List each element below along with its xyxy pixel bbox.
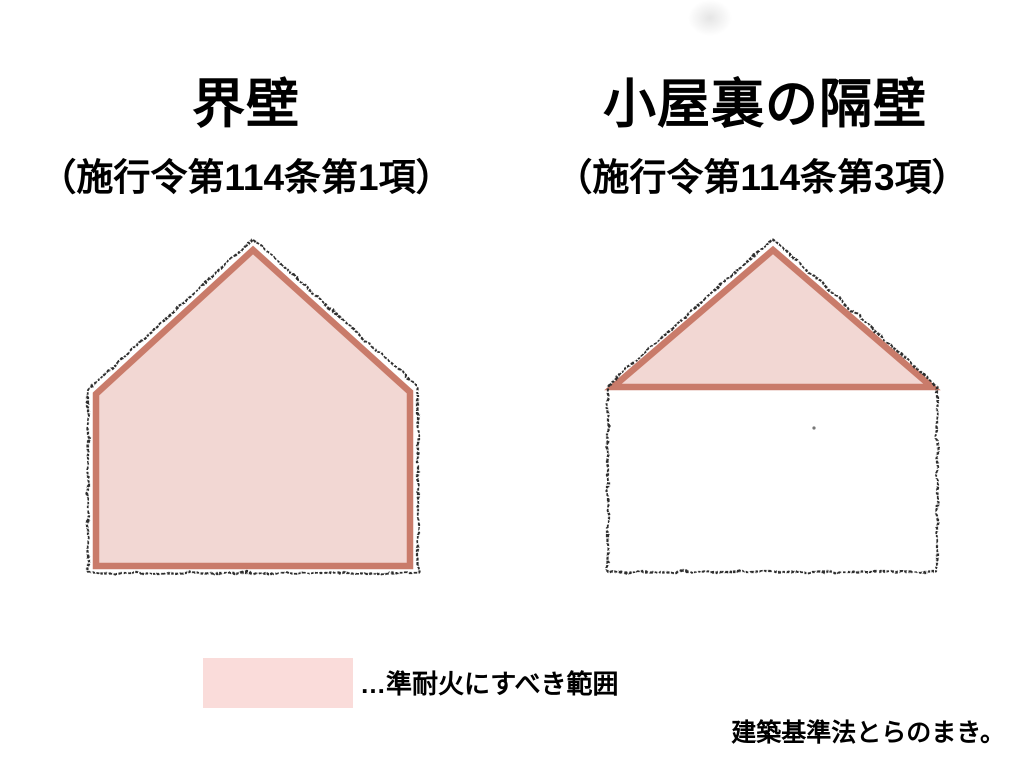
left-house-shaded-area (96, 250, 410, 566)
credit-text: 建築基準法とらのまき。 (731, 713, 1005, 749)
left-panel-subtitle: （施行令第114条第1項） (39, 156, 452, 200)
legend-swatch (203, 658, 353, 708)
right-panel-subtitle: （施行令第114条第3項） (555, 156, 968, 200)
left-panel-title: 界壁 (192, 78, 300, 131)
right-panel-title: 小屋裏の隔壁 (603, 78, 927, 131)
stray-pencil-dot (812, 426, 815, 429)
right-attic-shaded-area (613, 250, 932, 387)
slide: 界壁 （施行令第114条第1項） 小屋裏の隔壁 （施行令第114条第3項） …準… (0, 0, 1024, 768)
left-house-diagram (88, 239, 418, 573)
legend-label: …準耐火にすべき範囲 (360, 664, 618, 701)
right-house-diagram (608, 239, 937, 572)
